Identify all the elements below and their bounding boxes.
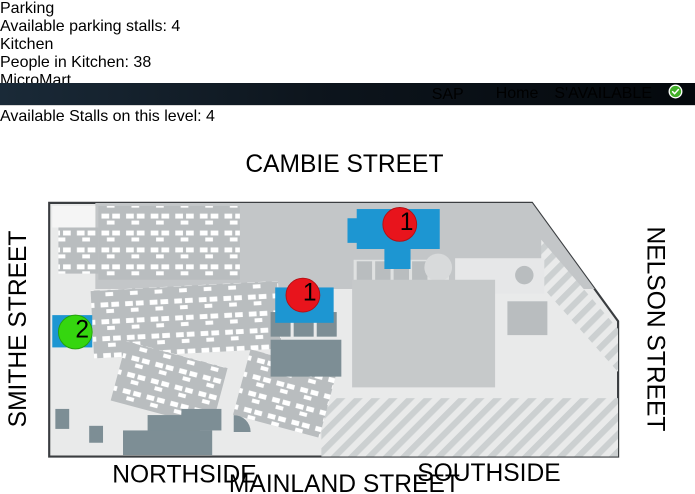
meeting-room [357,261,372,281]
desk-cluster-central [91,281,282,358]
round-room [424,254,452,282]
slate-room-small [89,426,103,443]
floor-map-svg: CAMBIE STREET MAINLAND STREET SMITHE STR… [0,126,695,494]
floor-map-panel: CAMBIE STREET MAINLAND STREET SMITHE STR… [0,126,695,494]
slate-room-south [123,430,212,455]
round-room-small [515,266,533,284]
card-kitchen: Kitchen People in Kitchen: 38 [0,36,695,72]
card-parking-title: Parking [0,0,695,18]
street-north-label: CAMBIE STREET [245,151,443,178]
southside-label: SOUTHSIDE [417,460,560,487]
card-parking: Parking Available parking stalls: 4 [0,0,695,36]
top-nav-bar: SAP Home S'AVAILABLE [0,83,695,106]
central-core [352,280,495,388]
hatched-area-south [321,398,618,456]
sidebar: Parking Available parking stalls: 4 Kitc… [0,0,695,126]
desk-cluster-northwest [58,227,98,273]
card-parking-subtitle: Available parking stalls: 4 [0,18,695,36]
room-east [507,301,547,335]
marker-north-kitchen[interactable]: 1 [383,207,417,241]
marker-central-kitchen[interactable]: 1 [286,278,320,312]
card-kitchen-subtitle: People in Kitchen: 38 [0,54,695,72]
marker-central-kitchen-count: 1 [303,280,317,307]
app-page: SAP Home S'AVAILABLE Parking Available p… [0,0,695,494]
marker-west-bathroom-count: 2 [75,316,89,343]
marker-west-bathroom[interactable]: 2 [58,315,92,349]
slate-room-small [55,409,69,429]
desk-cluster-north [98,206,239,280]
street-west-label: SMITHE STREET [5,231,32,428]
room-top-left [52,206,95,228]
sap-logo-text: SAP [432,86,464,103]
northside-label: NORTHSIDE [112,462,256,489]
card-bathrooms-subtitle: Available Stalls on this level: 4 [0,108,695,126]
slate-room-south [181,409,221,431]
status-check-icon[interactable] [668,84,683,104]
marker-north-kitchen-count: 1 [400,209,414,236]
nav-app-title[interactable]: S'AVAILABLE [554,85,652,103]
sap-logo[interactable]: SAP [432,86,474,103]
card-kitchen-title: Kitchen [0,36,695,54]
nav-home-link[interactable]: Home [496,85,539,103]
slate-room-block [271,340,342,377]
street-east-label: NELSON STREET [641,226,668,431]
